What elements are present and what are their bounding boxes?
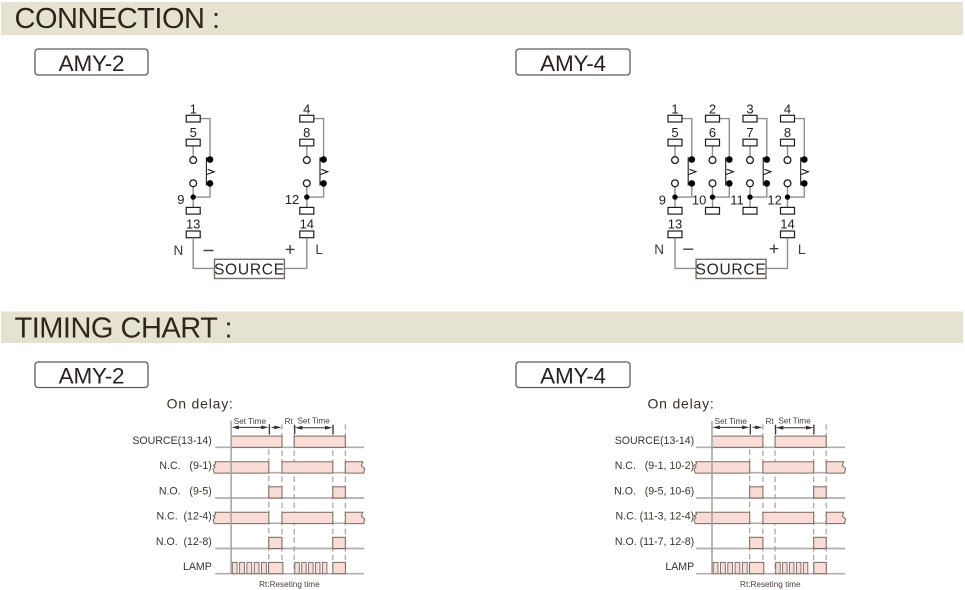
svg-text:N: N [173,243,183,258]
svg-text:N: N [654,242,664,257]
svg-text:8: 8 [303,125,310,140]
svg-text:10: 10 [692,193,706,208]
svg-text:11: 11 [730,193,744,208]
svg-text:N.O. (12-8): N.O. (12-8) [156,536,212,548]
svg-text:L: L [315,242,323,257]
svg-text:5: 5 [671,125,678,140]
svg-text:N.C. (11-3, 12-4): N.C. (11-3, 12-4) [615,511,694,523]
svg-text:8: 8 [784,125,791,140]
svg-text:13: 13 [186,217,200,232]
svg-text:7: 7 [746,125,753,140]
svg-text:9: 9 [177,192,184,207]
svg-text:CONNECTION :: CONNECTION : [15,3,220,35]
svg-text:4: 4 [303,101,310,116]
svg-text:SOURCE(13-14): SOURCE(13-14) [132,435,211,447]
svg-text:N.C. (9-1): N.C. (9-1) [159,460,211,472]
svg-text:SOURCE: SOURCE [696,261,767,278]
svg-text:4: 4 [784,101,791,116]
svg-text:N.O. (9-5, 10-6): N.O. (9-5, 10-6) [614,486,694,498]
svg-text:9: 9 [659,193,666,208]
svg-text:14: 14 [780,217,794,232]
svg-text:AMY-2: AMY-2 [59,363,125,388]
svg-text:13: 13 [668,217,682,232]
svg-text:N.C. (9-1, 10-2): N.C. (9-1, 10-2) [615,460,694,472]
svg-text:AMY-2: AMY-2 [59,51,125,76]
svg-text:TIMING CHART :: TIMING CHART : [15,312,233,344]
svg-text:AMY-4: AMY-4 [540,51,606,76]
svg-text:SOURCE: SOURCE [214,261,285,278]
svg-text:AMY-4: AMY-4 [540,363,606,388]
svg-text:L: L [798,242,806,257]
svg-text:N.O. (9-5): N.O. (9-5) [159,486,212,498]
svg-text:LAMP: LAMP [665,561,694,573]
svg-text:N.C. (12-4): N.C. (12-4) [156,511,211,523]
svg-text:1: 1 [190,101,197,116]
svg-text:5: 5 [190,125,197,140]
svg-text:1: 1 [671,101,678,116]
svg-text:3: 3 [746,101,753,116]
svg-text:6: 6 [709,125,716,140]
svg-text:2: 2 [709,101,716,116]
svg-text:SOURCE(13-14): SOURCE(13-14) [615,435,694,447]
svg-text:N.O. (11-7, 12-8): N.O. (11-7, 12-8) [615,536,694,548]
svg-text:LAMP: LAMP [183,561,212,573]
svg-text:12: 12 [285,192,299,207]
svg-text:14: 14 [300,217,314,232]
svg-text:12: 12 [767,193,781,208]
